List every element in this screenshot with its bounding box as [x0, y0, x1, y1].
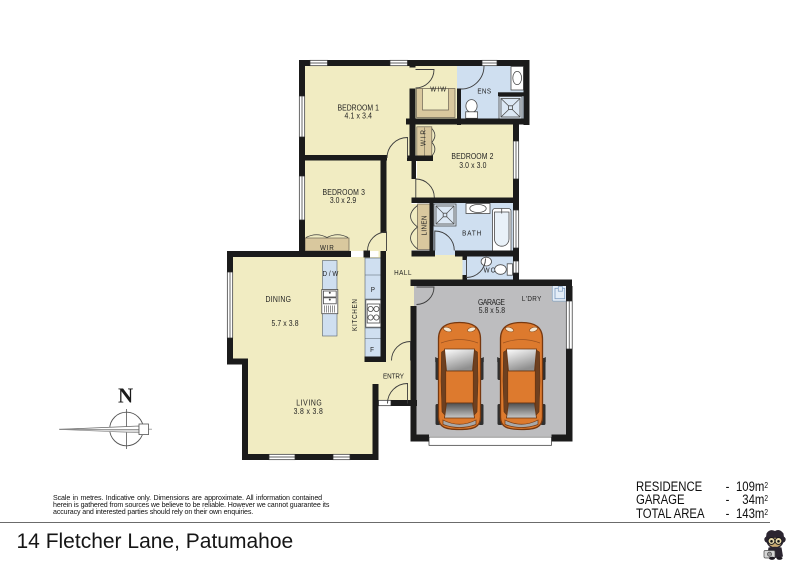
svg-text:ENS: ENS — [477, 88, 491, 96]
svg-text:3.0 x 3.0: 3.0 x 3.0 — [459, 160, 487, 170]
svg-text:ENTRY: ENTRY — [383, 373, 404, 381]
svg-text:WIW: WIW — [430, 86, 446, 94]
svg-text:N: N — [118, 384, 133, 408]
svg-text:D/W: D/W — [322, 271, 338, 279]
svg-text:3.0 x 2.9: 3.0 x 2.9 — [330, 195, 356, 205]
svg-text:HALL: HALL — [394, 270, 412, 278]
svg-text:LINEN: LINEN — [421, 215, 429, 235]
svg-text:F: F — [370, 346, 374, 354]
svg-text:DINING: DINING — [265, 294, 291, 304]
svg-text:BATH: BATH — [462, 230, 481, 238]
svg-text:KITCHEN: KITCHEN — [352, 299, 360, 331]
svg-text:WC: WC — [484, 267, 496, 275]
svg-text:5.7 x 3.8: 5.7 x 3.8 — [271, 318, 298, 328]
svg-text:4.1 x 3.4: 4.1 x 3.4 — [344, 111, 372, 121]
svg-text:5.8 x 5.8: 5.8 x 5.8 — [479, 305, 505, 315]
svg-text:WIR: WIR — [320, 244, 334, 252]
svg-text:3.8 x 3.8: 3.8 x 3.8 — [294, 406, 323, 416]
svg-text:L'DRY: L'DRY — [522, 295, 542, 303]
svg-text:WIR: WIR — [420, 130, 428, 146]
svg-text:P: P — [371, 287, 375, 295]
